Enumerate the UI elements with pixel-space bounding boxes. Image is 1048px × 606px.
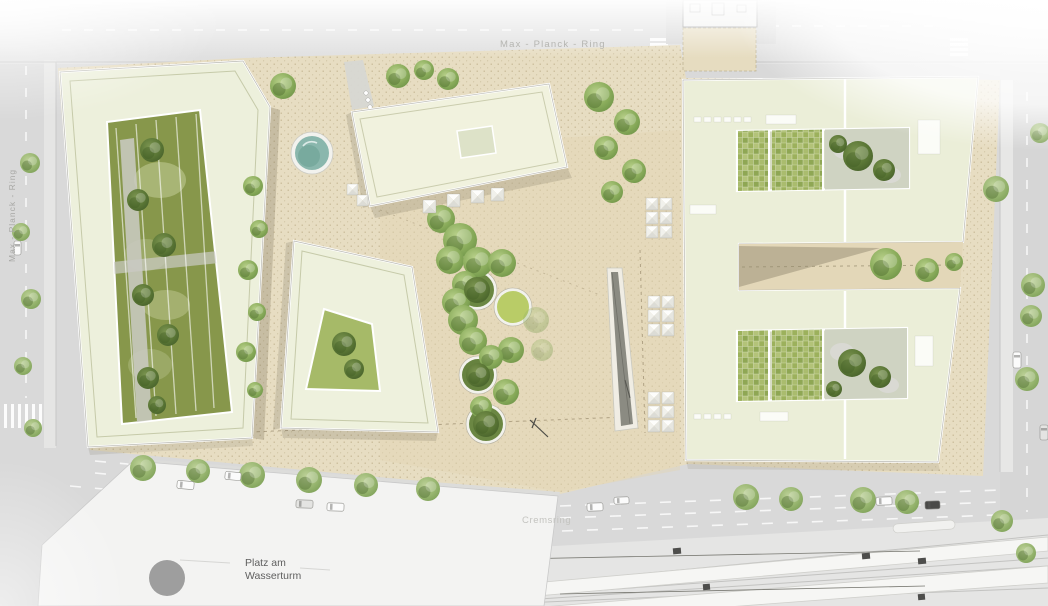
- east-courtyard-south: [737, 328, 909, 402]
- tree: [186, 459, 210, 483]
- tree: [238, 260, 258, 280]
- canopy-pyramid: [646, 212, 658, 224]
- tree: [436, 246, 464, 274]
- car: [296, 500, 313, 509]
- tree: [152, 233, 176, 257]
- car: [876, 497, 892, 506]
- tree: [236, 342, 256, 362]
- tree: [140, 138, 164, 162]
- tree: [991, 510, 1013, 532]
- tree: [239, 462, 265, 488]
- tree: [531, 339, 553, 361]
- car: [925, 501, 940, 510]
- canopy-pyramid: [646, 198, 658, 210]
- tree: [873, 159, 895, 181]
- tree: [622, 159, 646, 183]
- canopy-pyramid: [662, 420, 674, 432]
- water-tower: [149, 560, 185, 596]
- tree: [869, 366, 891, 388]
- canopy-pyramid: [648, 324, 660, 336]
- canopy-pyramid: [357, 195, 368, 206]
- tree: [14, 357, 32, 375]
- tree: [386, 64, 410, 88]
- tree: [1016, 543, 1036, 563]
- tree: [915, 258, 939, 282]
- site-plan-svg: Max - Planck - Ring Max - Planck - Ring …: [0, 0, 1048, 606]
- canopy-pyramid: [648, 392, 660, 404]
- tree: [132, 284, 154, 306]
- tree: [733, 484, 759, 510]
- tree: [983, 176, 1009, 202]
- north-block-courtyard: [457, 126, 496, 158]
- tree: [270, 73, 296, 99]
- canopy-pyramid: [662, 406, 674, 418]
- tree: [20, 153, 40, 173]
- tree: [779, 487, 803, 511]
- tree: [296, 467, 322, 493]
- canopy-pyramid: [648, 310, 660, 322]
- tree: [945, 253, 963, 271]
- pond: [291, 132, 333, 174]
- canopy-pyramid: [491, 188, 504, 201]
- tree: [493, 379, 519, 405]
- tree: [870, 248, 902, 280]
- car: [1013, 352, 1021, 368]
- canopy-pyramid: [347, 184, 358, 195]
- canopy-pyramid: [423, 200, 436, 213]
- car: [225, 471, 242, 480]
- canopy-pyramid: [662, 392, 674, 404]
- tree: [601, 181, 623, 203]
- tree: [523, 307, 549, 333]
- street-label-top: Max - Planck - Ring: [500, 39, 606, 50]
- tree: [137, 367, 159, 389]
- tree: [354, 473, 378, 497]
- tree: [157, 324, 179, 346]
- canopy-pyramid: [662, 324, 674, 336]
- tree: [466, 363, 490, 387]
- canopy-pyramid: [662, 310, 674, 322]
- tree: [895, 490, 919, 514]
- tree: [250, 220, 268, 238]
- car: [614, 497, 629, 505]
- tree: [243, 176, 263, 196]
- canopy-pyramid: [660, 198, 672, 210]
- tree: [584, 82, 614, 112]
- canopy-pyramid: [646, 226, 658, 238]
- car: [327, 503, 344, 512]
- canopy-pyramid: [447, 194, 460, 207]
- tree: [416, 477, 440, 501]
- tree: [148, 396, 166, 414]
- car: [177, 480, 195, 489]
- tree: [248, 303, 266, 321]
- canopy-pyramid: [662, 296, 674, 308]
- canopy-pyramid: [471, 190, 484, 203]
- car: [1040, 425, 1048, 440]
- canopy-pyramid: [660, 226, 672, 238]
- tree: [414, 60, 434, 80]
- tree: [1020, 305, 1042, 327]
- site-plan: Max - Planck - Ring Max - Planck - Ring …: [0, 0, 1048, 606]
- tree: [826, 381, 842, 397]
- tree: [21, 289, 41, 309]
- tree: [344, 359, 364, 379]
- tree: [127, 189, 149, 211]
- tree: [130, 455, 156, 481]
- tree: [614, 109, 640, 135]
- tree: [247, 382, 263, 398]
- tree: [594, 136, 618, 160]
- canopy-pyramid: [648, 406, 660, 418]
- tree: [838, 349, 866, 377]
- tree: [332, 332, 356, 356]
- street-label-left: Max - Planck - Ring: [7, 169, 17, 262]
- car: [587, 503, 603, 512]
- canopy-pyramid: [648, 420, 660, 432]
- tree: [850, 487, 876, 513]
- canopy-pyramid: [648, 296, 660, 308]
- tree: [464, 277, 490, 303]
- tree: [437, 68, 459, 90]
- tree: [488, 249, 516, 277]
- tree: [24, 419, 42, 437]
- street-label-bottom: Cremsring: [522, 515, 571, 526]
- tree: [473, 411, 499, 437]
- canopy-pyramid: [660, 212, 672, 224]
- tree: [1021, 273, 1045, 297]
- tree: [1015, 367, 1039, 391]
